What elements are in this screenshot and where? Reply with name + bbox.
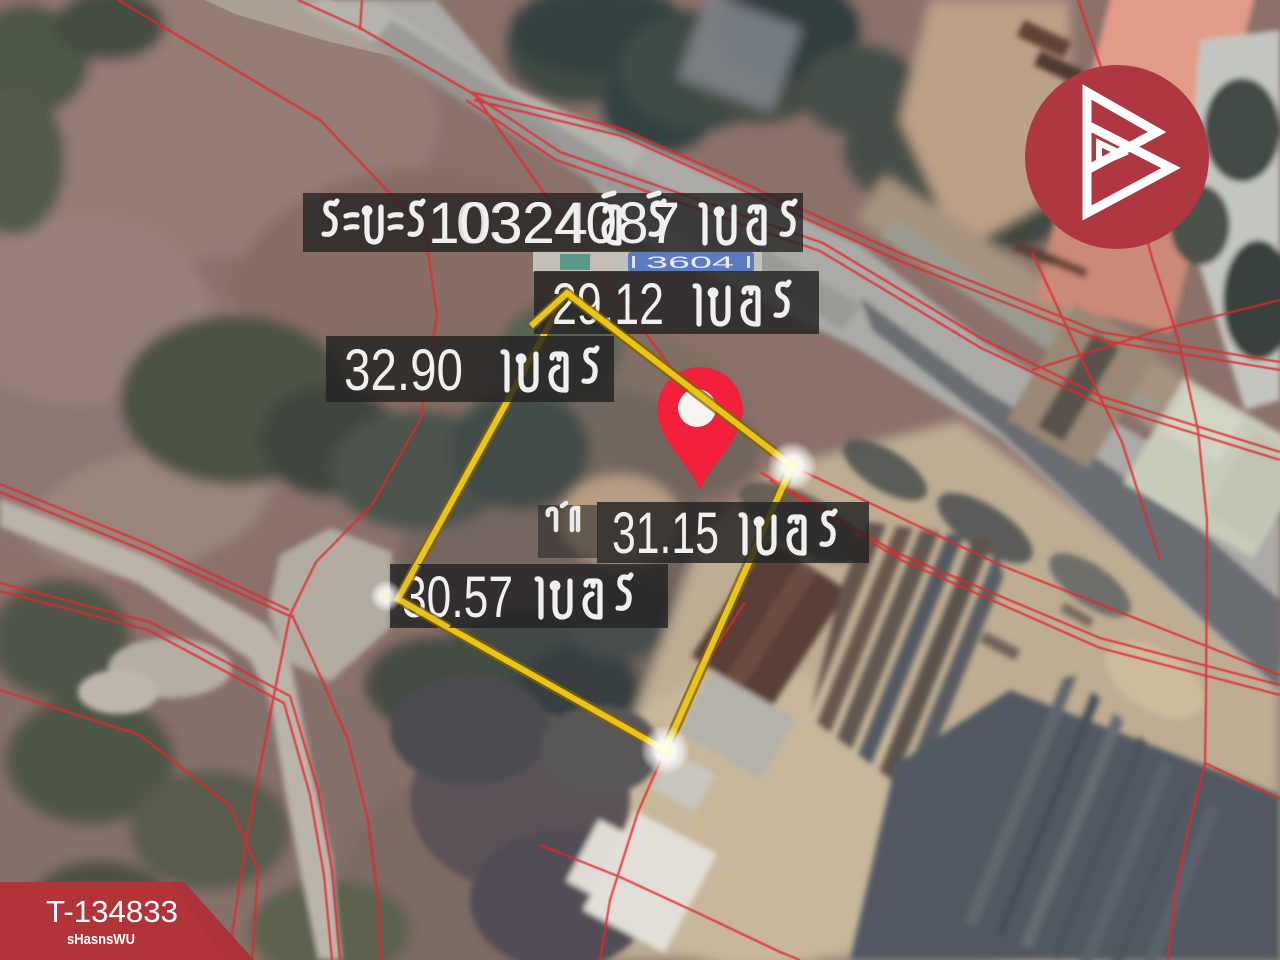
svg-text:sHasnsWU: sHasnsWU (67, 931, 135, 948)
svg-text:T-134833: T-134833 (46, 894, 178, 929)
svg-text:30.57: 30.57 (402, 565, 513, 630)
svg-text:31.15: 31.15 (612, 501, 719, 566)
svg-text:0324: 0324 (456, 191, 588, 256)
svg-text:32.90: 32.90 (344, 338, 463, 403)
